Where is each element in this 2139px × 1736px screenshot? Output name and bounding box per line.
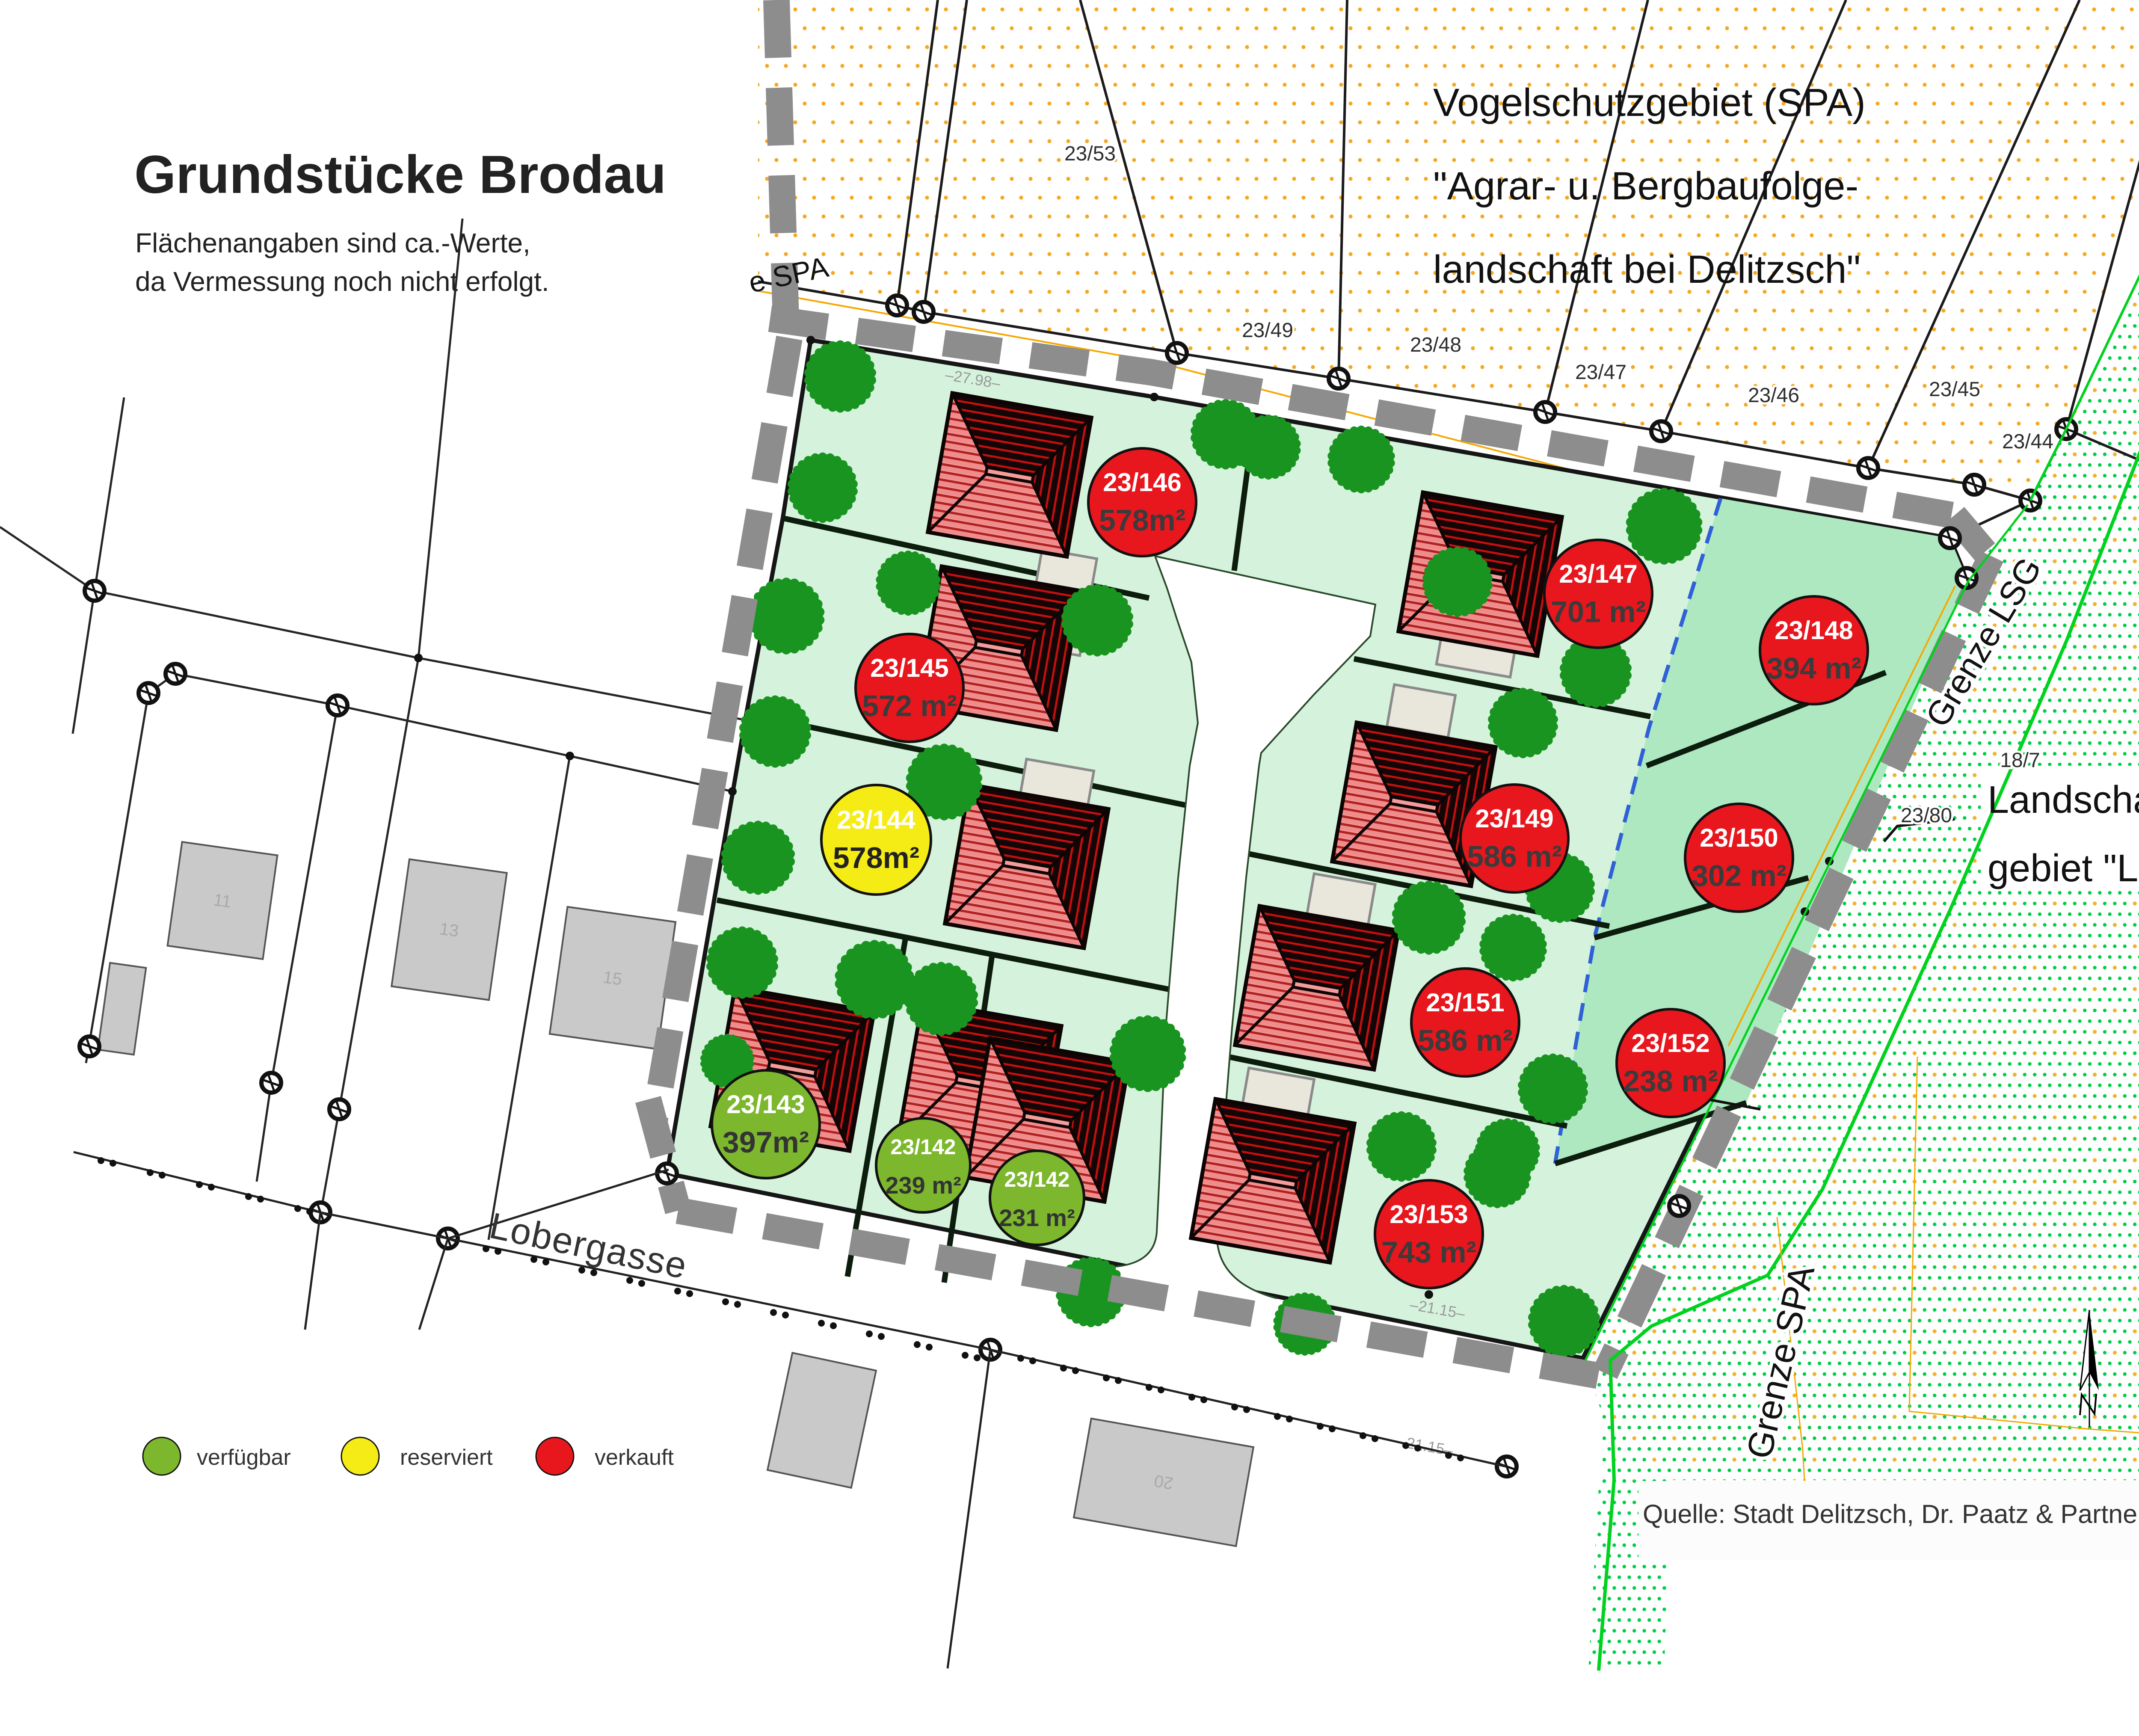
svg-text:"Agrar- u. Bergbaufolge-: "Agrar- u. Bergbaufolge-: [1433, 164, 1858, 208]
svg-text:586 m²: 586 m²: [1418, 1024, 1513, 1057]
svg-text:578m²: 578m²: [1099, 504, 1185, 537]
svg-text:23/147: 23/147: [1559, 560, 1638, 588]
svg-text:reserviert: reserviert: [400, 1445, 493, 1470]
svg-text:23/48: 23/48: [1410, 334, 1461, 356]
svg-text:Landscha: Landscha: [1988, 779, 2139, 821]
svg-text:231 m²: 231 m²: [999, 1204, 1075, 1231]
svg-text:302 m²: 302 m²: [1692, 859, 1786, 892]
svg-text:23/45: 23/45: [1929, 378, 1980, 401]
svg-text:23/47: 23/47: [1575, 361, 1626, 384]
svg-text:578m²: 578m²: [833, 841, 919, 874]
svg-text:da Vermessung noch nicht erfol: da Vermessung noch nicht erfolgt.: [135, 266, 549, 297]
svg-text:394 m²: 394 m²: [1766, 652, 1861, 685]
svg-text:23/44: 23/44: [2002, 430, 2053, 453]
svg-text:397m²: 397m²: [723, 1126, 809, 1159]
svg-text:23/150: 23/150: [1700, 824, 1778, 852]
svg-text:13: 13: [438, 919, 460, 941]
svg-text:verfügbar: verfügbar: [197, 1445, 291, 1470]
svg-text:23/80: 23/80: [1901, 804, 1952, 827]
svg-text:586 m²: 586 m²: [1467, 840, 1562, 873]
svg-text:23/149: 23/149: [1475, 804, 1554, 833]
svg-text:239 m²: 239 m²: [885, 1172, 961, 1199]
svg-text:23/142: 23/142: [891, 1135, 956, 1159]
svg-text:23/46: 23/46: [1748, 384, 1799, 407]
svg-text:743 m²: 743 m²: [1381, 1235, 1476, 1269]
svg-text:Flächenangaben sind ca.-Werte,: Flächenangaben sind ca.-Werte,: [135, 228, 530, 258]
svg-text:23/144: 23/144: [837, 806, 915, 834]
svg-text:23/153: 23/153: [1389, 1200, 1468, 1229]
svg-text:23/146: 23/146: [1103, 468, 1182, 497]
svg-text:23/152: 23/152: [1631, 1029, 1710, 1058]
svg-text:572 m²: 572 m²: [862, 689, 957, 723]
svg-text:Quelle: Stadt Delitzsch, Dr. P: Quelle: Stadt Delitzsch, Dr. Paatz & Par…: [1643, 1499, 2139, 1529]
svg-text:23/142: 23/142: [1004, 1167, 1070, 1191]
svg-text:18/7: 18/7: [2000, 749, 2040, 772]
svg-text:verkauft: verkauft: [595, 1445, 674, 1470]
svg-text:Vogelschutzgebiet (SPA): Vogelschutzgebiet (SPA): [1433, 81, 1866, 124]
svg-text:gebiet "Lo: gebiet "Lo: [1988, 847, 2139, 890]
svg-text:Grundstücke Brodau: Grundstücke Brodau: [134, 145, 666, 204]
svg-text:238 m²: 238 m²: [1623, 1064, 1718, 1098]
svg-text:20: 20: [1152, 1471, 1174, 1493]
svg-text:11: 11: [212, 890, 232, 911]
svg-text:landschaft bei Delitzsch": landschaft bei Delitzsch": [1433, 248, 1861, 291]
svg-text:701 m²: 701 m²: [1551, 595, 1646, 628]
svg-text:23/49: 23/49: [1242, 319, 1293, 342]
svg-text:15: 15: [602, 968, 623, 989]
svg-text:23/145: 23/145: [870, 654, 949, 682]
svg-text:23/53: 23/53: [1064, 142, 1116, 165]
svg-text:23/143: 23/143: [726, 1090, 805, 1119]
svg-text:23/148: 23/148: [1775, 616, 1853, 645]
svg-text:23/151: 23/151: [1426, 988, 1505, 1017]
